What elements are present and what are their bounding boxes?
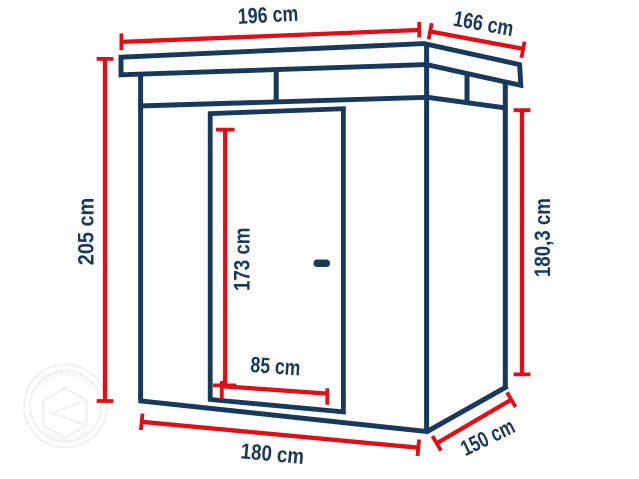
svg-text:180 cm: 180 cm — [240, 438, 306, 469]
svg-text:GARTENHAUS: GARTENHAUS — [38, 371, 94, 389]
svg-text:85 cm: 85 cm — [250, 352, 302, 380]
svg-text:196 cm: 196 cm — [237, 1, 299, 29]
svg-text:180,3 cm: 180,3 cm — [530, 198, 555, 277]
svg-text:205 cm: 205 cm — [74, 198, 99, 266]
svg-text:173 cm: 173 cm — [230, 228, 255, 292]
svg-text:150 cm: 150 cm — [457, 413, 519, 460]
